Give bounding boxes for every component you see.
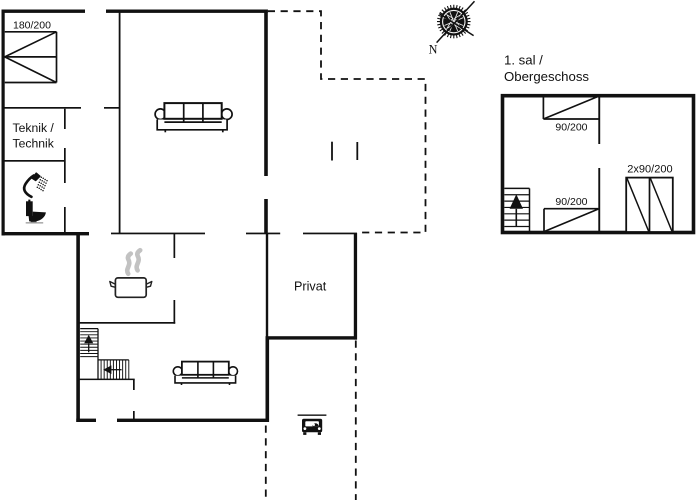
svg-text:180/200: 180/200 xyxy=(13,20,51,32)
svg-text:Teknik /: Teknik / xyxy=(13,121,55,135)
svg-text:90/200: 90/200 xyxy=(555,121,587,133)
svg-text:Privat: Privat xyxy=(294,279,327,293)
svg-text:Obergeschoss: Obergeschoss xyxy=(504,69,589,84)
svg-text:N: N xyxy=(429,43,438,57)
svg-text:Technik: Technik xyxy=(13,137,55,151)
svg-text:90/200: 90/200 xyxy=(555,196,587,208)
svg-text:2x90/200: 2x90/200 xyxy=(627,163,672,175)
svg-text:1. sal /: 1. sal / xyxy=(504,52,543,67)
